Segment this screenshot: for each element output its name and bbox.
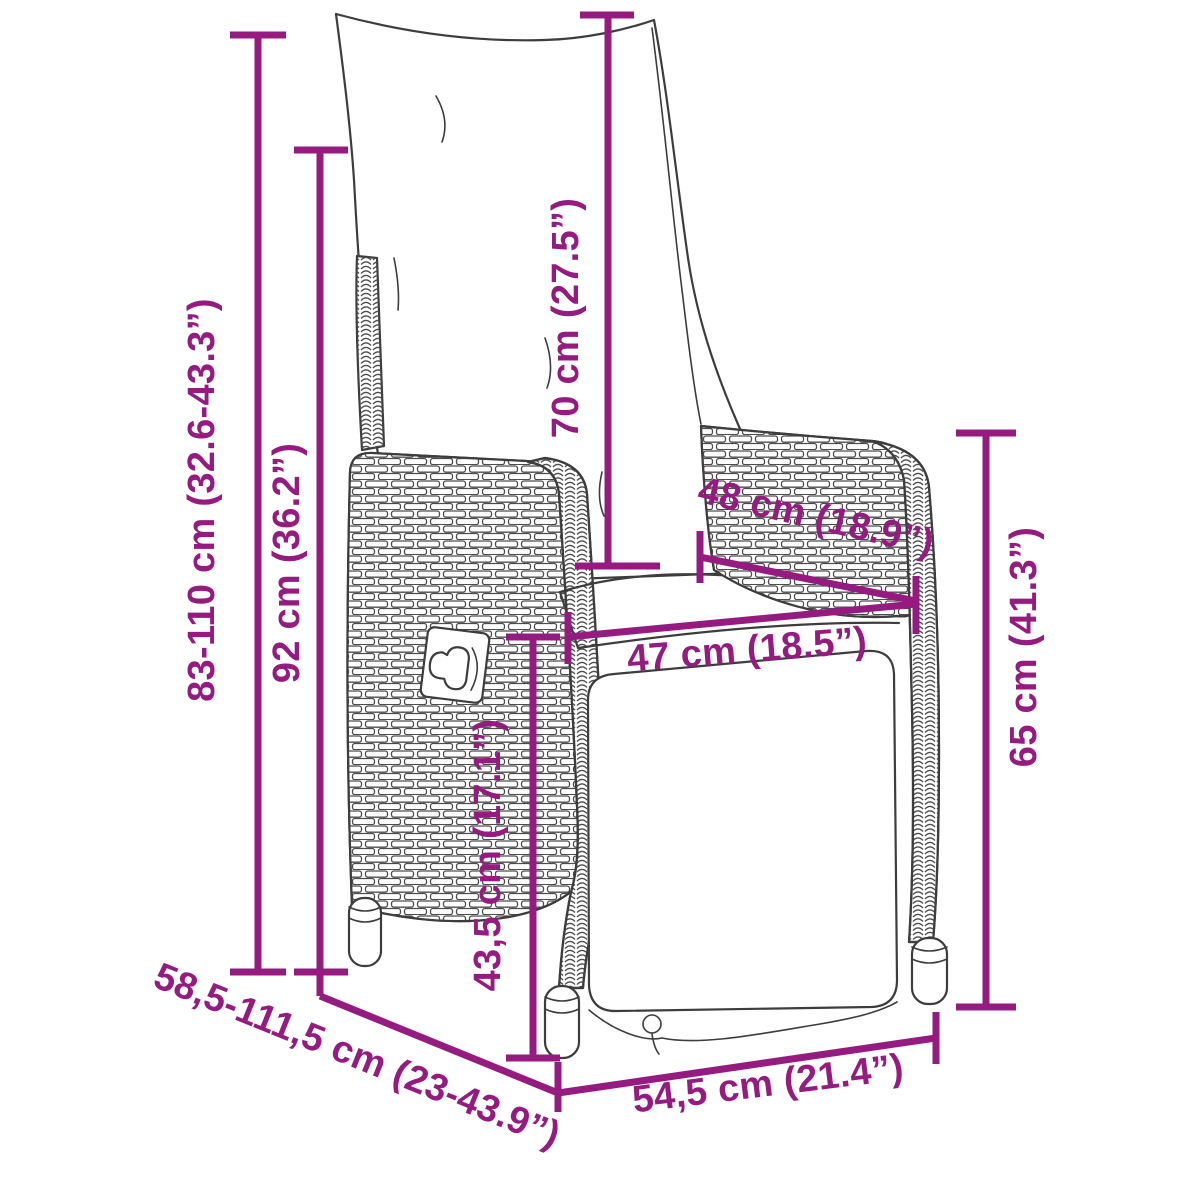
dim-label-armrest-height: 65 cm (41.3”): [1005, 527, 1043, 767]
recline-handle: [420, 626, 490, 703]
dim-label-backrest-height: 92 cm (36.2”): [268, 443, 306, 683]
dim-label-back-cushion-length: 70 cm (27.5”): [547, 198, 585, 438]
seat-skirt-panel: [588, 651, 897, 1054]
dim-label-total-height: 83-110 cm (32.6-43.3”): [183, 298, 221, 702]
dimension-diagram: 83-110 cm (32.6-43.3”) 92 cm (36.2”) 70 …: [0, 0, 1200, 1200]
dim-label-seat-height: 43,5 cm (17.1”): [469, 719, 507, 992]
